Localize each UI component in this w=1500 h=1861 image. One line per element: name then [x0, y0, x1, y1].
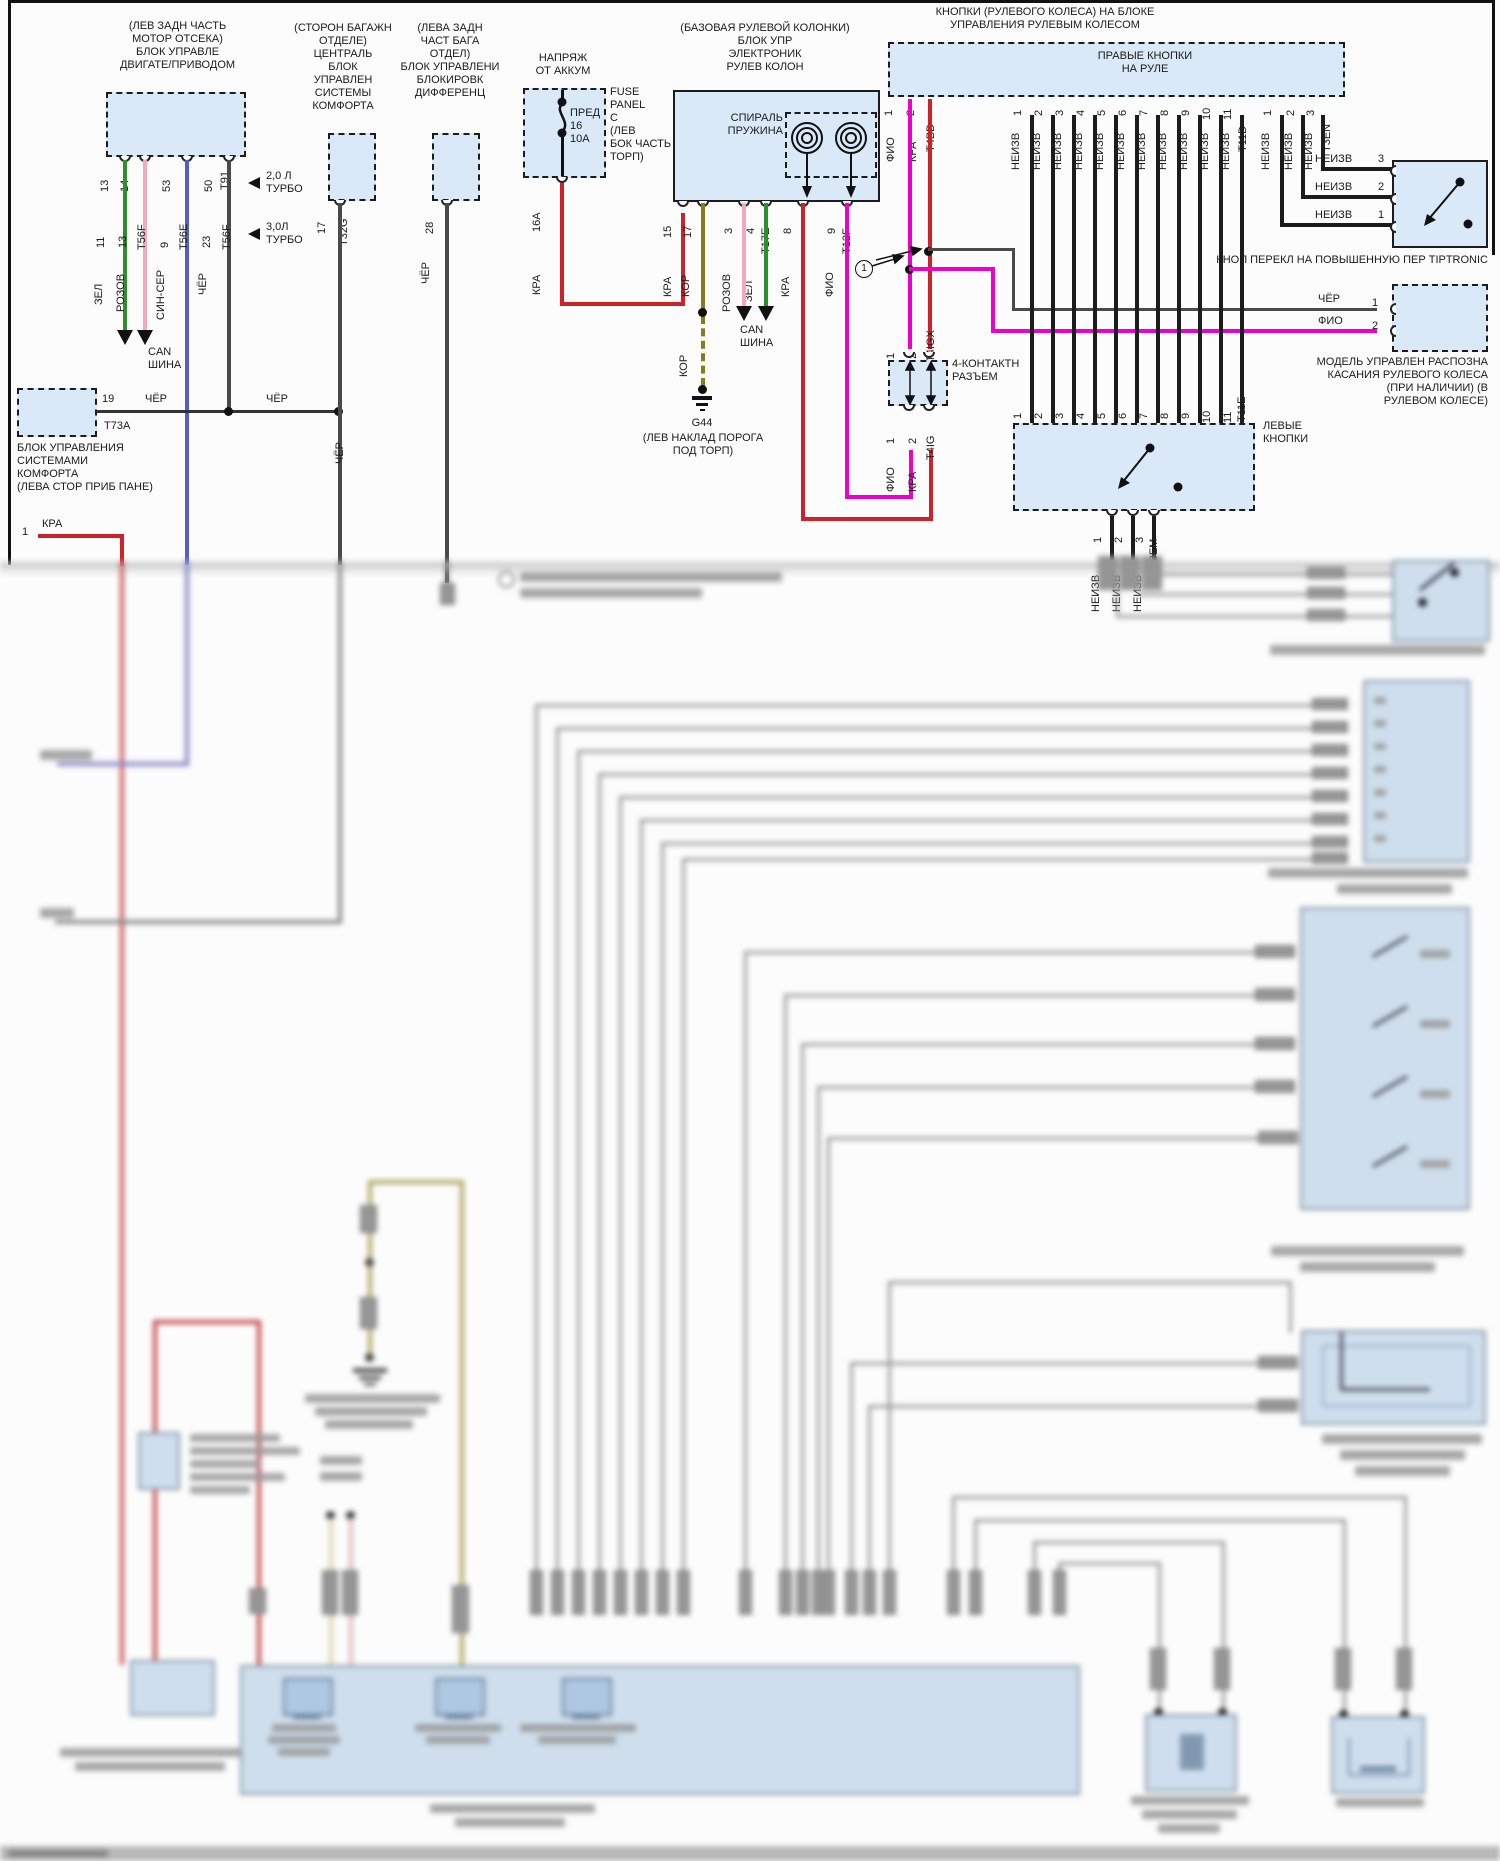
wire-chyor	[55, 920, 342, 924]
label-smudge	[520, 1724, 636, 1732]
footnote-smudge	[520, 572, 782, 582]
wire-gray	[598, 773, 601, 1572]
connector	[1312, 790, 1348, 802]
pin-smudge	[1374, 697, 1386, 704]
label-smudge	[190, 1486, 250, 1494]
wire-gray	[661, 842, 664, 1572]
stub-label-smudge	[40, 908, 74, 918]
label-smudge	[426, 1736, 490, 1744]
wire-red	[257, 1320, 261, 1590]
ground-icon	[359, 1376, 381, 1380]
wire-gray	[827, 1137, 1265, 1140]
pin-smudge	[1374, 835, 1386, 842]
wire-olive	[460, 1180, 464, 1585]
label-smudge	[1271, 1246, 1464, 1256]
wire-gray	[1033, 1541, 1225, 1544]
label-smudge	[1131, 1796, 1249, 1805]
connector	[1214, 1648, 1230, 1690]
wire-gray	[1289, 1281, 1292, 1333]
pin-smudge	[1374, 743, 1386, 750]
connector	[1150, 1648, 1166, 1690]
junction-box	[130, 1660, 215, 1716]
wire-gray	[577, 750, 1318, 753]
connector	[1255, 945, 1295, 958]
label-smudge	[1355, 1466, 1450, 1476]
label-smudge	[1300, 1262, 1435, 1272]
main-bottom-box	[240, 1665, 1080, 1795]
stub-label-smudge	[40, 750, 92, 760]
label-smudge	[320, 1456, 362, 1465]
connector	[739, 1570, 752, 1615]
connector	[1255, 1080, 1295, 1093]
wire-gray	[868, 1405, 871, 1572]
wire-gray	[682, 858, 685, 1572]
pin-smudge	[1374, 789, 1386, 796]
connector	[360, 1297, 377, 1329]
label-smudge	[415, 1724, 501, 1732]
bottom-strip	[0, 1846, 1500, 1861]
switch-dot	[1450, 568, 1459, 577]
wire-gray	[974, 1519, 1346, 1522]
wire-olive	[368, 1180, 372, 1208]
connector	[883, 1570, 896, 1615]
connector	[572, 1570, 585, 1615]
monitor-base	[445, 1714, 473, 1719]
label-smudge	[1268, 868, 1468, 878]
connector	[1312, 813, 1348, 825]
connector	[360, 1205, 377, 1233]
connector	[1255, 1037, 1295, 1050]
connector	[635, 1570, 648, 1615]
connector	[677, 1570, 690, 1615]
connector	[1312, 767, 1348, 779]
wire-gray	[1058, 1562, 1161, 1565]
connector	[342, 1570, 358, 1615]
inner-outline	[1322, 1345, 1471, 1407]
label-smudge	[190, 1473, 285, 1481]
connector	[452, 1585, 469, 1633]
label-smudge	[190, 1460, 260, 1468]
wire-red	[257, 1614, 261, 1665]
wire-gray	[577, 750, 580, 1572]
wire-gray	[827, 1137, 830, 1572]
connector	[1120, 556, 1140, 590]
wire-gray	[801, 1043, 804, 1572]
connector	[656, 1570, 669, 1615]
wire-gray	[784, 994, 787, 1572]
label-smudge	[75, 1762, 225, 1771]
wire-olive	[460, 1633, 464, 1665]
wire-gray	[850, 1362, 1263, 1365]
connector	[779, 1570, 792, 1615]
connector	[845, 1570, 858, 1615]
glyph-smudge	[1180, 1734, 1204, 1770]
label-smudge	[305, 1394, 440, 1403]
wire-gray	[850, 1362, 853, 1572]
wire-gray	[619, 796, 622, 1572]
wire-sinser	[185, 560, 189, 765]
connector	[322, 1570, 338, 1615]
wire-dark	[1340, 1388, 1430, 1391]
label-smudge	[1158, 1824, 1220, 1833]
label-smudge	[1420, 1090, 1450, 1098]
connector	[796, 1570, 809, 1615]
switch-dot	[1418, 598, 1427, 607]
monitor-base	[293, 1714, 321, 1719]
label-smudge	[1420, 1160, 1450, 1168]
monitor-icon	[283, 1678, 333, 1716]
wire-gray	[744, 951, 1260, 954]
splice-dot	[365, 1353, 374, 1362]
label-smudge	[1420, 1020, 1450, 1028]
connector	[1053, 1570, 1066, 1615]
connector	[1335, 1648, 1351, 1690]
wire-olive	[368, 1233, 372, 1261]
label-smudge	[455, 1818, 565, 1827]
connector	[1258, 1356, 1298, 1369]
label-smudge	[315, 1407, 427, 1416]
label-smudge	[320, 1472, 362, 1481]
wire-gray	[888, 1281, 1292, 1284]
connector	[1028, 1570, 1041, 1615]
wire-gray	[888, 1281, 891, 1572]
wire-gray	[1116, 590, 1119, 617]
connector	[863, 1570, 876, 1615]
connector	[822, 1570, 835, 1615]
wire-gray	[817, 1086, 820, 1572]
wire-gray	[640, 819, 1318, 822]
wire-gray	[1160, 573, 1392, 576]
wire-olive	[368, 1180, 464, 1184]
label-smudge	[1340, 1450, 1465, 1460]
label-smudge	[1336, 1798, 1424, 1807]
wiring-diagram-page: (ЛЕВ ЗАДН ЧАСТЬ МОТОР ОТСЕКА) БЛОК УПРАВ…	[0, 0, 1500, 1861]
pin-smudge	[1374, 720, 1386, 727]
wire-chyor-diff	[445, 560, 449, 585]
wire-red	[153, 1320, 157, 1665]
connector	[1396, 1648, 1412, 1690]
label-smudge	[430, 1804, 595, 1813]
connector	[947, 1570, 960, 1615]
ground-icon	[353, 1368, 387, 1373]
label-smudge	[268, 1736, 340, 1744]
connector	[551, 1570, 564, 1615]
footnote-circle	[498, 571, 515, 588]
wire-dark	[1340, 1332, 1343, 1390]
pin-smudge	[1374, 812, 1386, 819]
wire-gray	[974, 1519, 977, 1572]
wire-gray	[619, 796, 1318, 799]
connector	[1312, 852, 1348, 864]
wire-gray	[640, 819, 643, 1572]
connector	[1098, 556, 1118, 590]
connector	[1312, 698, 1348, 710]
monitor-icon	[435, 1678, 485, 1716]
wire-gray	[744, 951, 747, 1572]
connector	[593, 1570, 606, 1615]
wire-gray	[784, 994, 1260, 997]
blurred-lower-section	[0, 0, 1500, 1861]
monitor-base	[572, 1714, 600, 1719]
footnote-smudge	[520, 588, 702, 598]
connector	[1142, 556, 1162, 590]
wire-olive	[368, 1266, 372, 1299]
wire-gray	[817, 1086, 1260, 1089]
connector	[530, 1570, 543, 1615]
ground-icon	[364, 1383, 376, 1386]
label-smudge	[538, 1736, 616, 1744]
connector	[249, 1588, 266, 1614]
label-smudge	[1420, 950, 1450, 958]
wire-gray	[952, 1496, 955, 1572]
label-smudge	[190, 1434, 280, 1442]
connector	[1307, 587, 1345, 599]
connector	[1307, 609, 1345, 621]
connector	[1255, 988, 1295, 1001]
connector	[1258, 1131, 1298, 1144]
wire-gray	[1116, 615, 1392, 618]
wire-chyor	[338, 560, 342, 924]
connector	[440, 583, 455, 605]
wire-gray	[535, 704, 538, 1572]
wire-kra	[120, 560, 124, 1665]
label-smudge	[190, 1447, 300, 1455]
label-smudge	[272, 1724, 336, 1732]
wire-gray	[952, 1496, 1407, 1499]
label-smudge	[325, 1420, 413, 1429]
connector	[969, 1570, 982, 1615]
connector	[1307, 567, 1345, 579]
label-smudge	[60, 1748, 250, 1757]
wire-gray	[1033, 1541, 1036, 1572]
connector	[1312, 721, 1348, 733]
monitor-icon	[562, 1678, 612, 1716]
label-smudge	[1142, 1810, 1237, 1819]
wire-gray	[661, 842, 1318, 845]
label-smudge	[1337, 884, 1452, 894]
wire-gray	[801, 1043, 1260, 1046]
wire-gray	[556, 727, 559, 1572]
label-smudge	[278, 1748, 330, 1756]
connector	[614, 1570, 627, 1615]
label-smudge	[1270, 645, 1485, 655]
wire-gray	[535, 704, 1318, 707]
wire-gray	[1138, 593, 1392, 596]
wire-gray	[556, 727, 1318, 730]
watermark-smudge	[8, 1850, 108, 1857]
pin-smudge	[1374, 766, 1386, 773]
connector	[1258, 1399, 1298, 1412]
tub-base	[1360, 1766, 1396, 1772]
wire-gray	[868, 1405, 1263, 1408]
label-smudge	[1322, 1434, 1482, 1444]
connector	[1312, 744, 1348, 756]
wire-red	[153, 1320, 261, 1324]
wire-gray	[598, 773, 1318, 776]
wire-gray	[682, 858, 1318, 861]
connector	[1312, 836, 1348, 848]
wire-sinser	[57, 762, 189, 766]
diode-block-box	[138, 1432, 180, 1490]
